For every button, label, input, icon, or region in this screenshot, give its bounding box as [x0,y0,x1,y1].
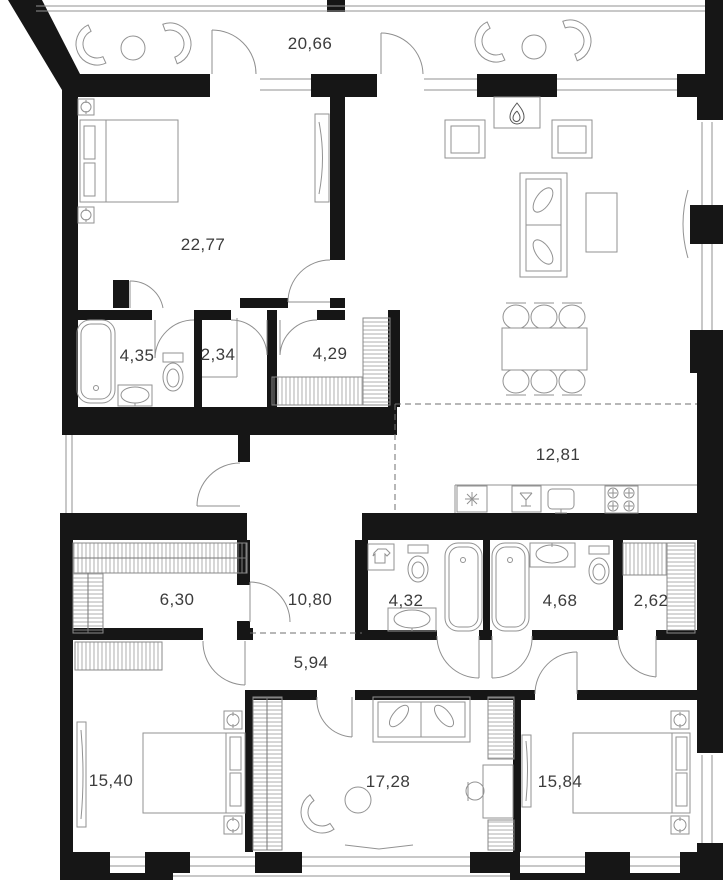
terrace-table-icon [522,35,546,59]
door-bedroom2 [203,641,245,685]
wardrobe-walkin-top [73,543,247,573]
dining-chair-icon [503,303,529,329]
door-closet [618,636,656,677]
wardrobe-hall-closet-bottom [272,377,363,405]
terrace-railing [36,6,705,11]
terrace-armchair-icon [163,17,197,64]
lounge-armchair-icon [293,795,334,841]
wardrobe-study-right-lower [488,820,514,850]
door-wc [231,320,267,355]
wardrobe-walkin-left [73,573,103,633]
terrace-armchair-icon [468,22,505,69]
door-vestibule [130,281,163,308]
armchair-icon [552,120,592,158]
wardrobe-hall-closet-right [363,318,390,405]
nightstand-icon [224,816,242,834]
kitchen-counter [455,485,697,513]
mirror-icon [315,114,329,202]
window-terrace-2 [424,79,477,90]
nightstand-icon [224,711,242,729]
toilet-icon [163,353,183,391]
desk-icon [483,765,513,818]
wardrobe-closet-right [667,543,695,633]
window-sill-line [345,845,413,849]
window-right-2 [702,244,712,330]
terrace-armchair-icon [563,14,597,61]
bathtub-icon [77,320,115,403]
door-bedroom3 [535,652,577,694]
dining-chair-icon [559,369,585,395]
room-label-corridor: 5,94 [294,653,329,673]
wardrobe-closet-top [623,543,667,575]
dining-chair-icon [503,369,529,395]
window-right-3 [702,755,712,843]
room-label-walkin-closet: 6,30 [160,590,195,610]
sink-icon [530,543,575,567]
sink-icon [388,608,436,631]
bathtub-icon [445,543,482,631]
kitchen-sink-icon [548,489,574,513]
tv-console-icon [586,193,617,252]
washing-machine-icon [368,544,394,570]
room-label-bedroom-1: 22,77 [181,235,226,255]
plan-drawing [0,0,723,880]
window-leaf-curve [683,190,688,258]
dining-chair-icon [531,369,557,395]
fireplace-icon [494,97,540,128]
window-terrace-1 [260,79,311,90]
nightstand-icon [671,816,689,834]
room-label-bedroom-3: 15,84 [538,772,583,792]
door-walkin-closet [250,582,290,622]
wardrobe-study-left [253,697,282,850]
door-living-terrace [381,33,423,74]
terrace-table-icon [121,36,145,60]
room-label-bathroom-1: 4,35 [120,346,155,366]
bathtub-icon [492,543,529,631]
sofa-icon [373,697,470,742]
window-right-1 [702,122,712,205]
room-label-bathroom-3: 4,68 [543,591,578,611]
room-label-wc: 2,34 [201,345,236,365]
nightstand-icon [671,711,689,729]
mirror-icon [77,722,86,827]
door-hall [197,463,240,506]
room-label-kitchen: 12,81 [536,445,581,465]
nightstand-icon [78,99,94,115]
mirror-icon [522,735,531,807]
refrigerator-icon [457,486,487,512]
desk-chair-icon [466,782,484,801]
bed-icon [573,733,690,813]
dining-chair-icon [531,303,557,329]
nightstand-icon [78,207,94,223]
room-label-hall: 10,80 [288,590,333,610]
dishwasher-icon [512,486,541,512]
room-label-study: 17,28 [366,772,411,792]
dining-table-icon [502,303,587,395]
wardrobe-bedroom2-top [75,642,162,670]
toilet-icon [408,545,428,582]
room-label-closet: 2,62 [634,591,669,611]
door-bathroom3 [492,636,532,678]
door-hall-closet [280,320,317,355]
door-bedroom1 [288,260,330,302]
door-bathroom1 [155,320,194,358]
room-label-hall-closet: 4,29 [313,344,348,364]
dining-chair-icon [559,303,585,329]
bed-icon [143,733,245,813]
window-left-wall [66,435,72,513]
bed-icon [80,120,178,202]
room-label-terrace: 20,66 [288,34,333,54]
wardrobe-study-right-upper [488,697,514,759]
room-label-bedroom-2: 15,40 [89,771,134,791]
door-bedroom1-terrace [212,30,256,74]
toilet-icon [589,546,609,584]
sofa-icon [520,173,567,277]
sink-icon [118,385,152,406]
door-bathroom2 [437,636,479,678]
hob-icon [605,486,638,513]
window-terrace-3 [557,79,677,90]
room-label-bathroom-2: 4,32 [389,591,424,611]
armchair-icon [445,120,485,158]
door-study [317,697,352,737]
floor-plan: 20,66 22,77 4,35 2,34 4,29 12,81 6,30 10… [0,0,723,880]
